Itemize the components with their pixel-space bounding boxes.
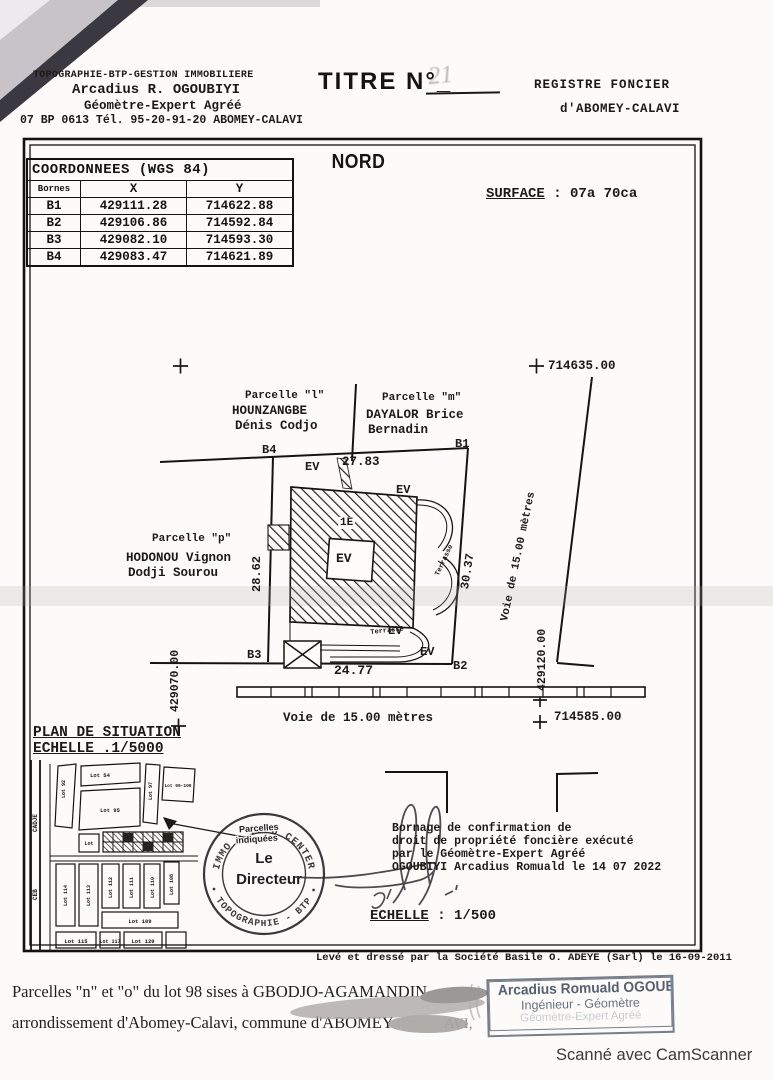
stamp-note-line1: Parcelles [239,822,279,835]
bornage-line4: OGOUBIYI Arcadius Romuald le 14 07 2022 [392,861,661,874]
lot-label: Lot 117 [99,939,120,945]
credit-line: Levé et dressé par la Société Basile O. … [316,952,732,964]
parcel-m-name: Parcelle "m" [382,392,461,404]
unit-label-1e: 1E [338,517,355,529]
firm-name: Arcadius R. OGOUBIYI [72,82,240,98]
surface-label: SURFACE [486,186,545,202]
lot-label: Lot 113 [86,885,92,906]
table-row: B4 429083.47 714621.89 [27,249,293,267]
north-label: NORD [332,151,386,174]
parcel-l-name: Parcelle "l" [245,390,324,402]
lot-label: Lot 112 [108,877,114,898]
terrace-label-right: Terrasse [434,544,455,578]
coordinates-table: COORDONNEES (WGS 84) Bornes X Y B1 42911… [26,158,294,267]
measure-bottom: 24.77 [334,663,373,678]
situation-map: Lot 92 Lot 54 Lot 95 Lot 97 Lot 99-100 L… [28,760,198,952]
surface-line: SURFACE : 07a 70ca [486,186,637,202]
scanned-survey-document: TOPOGRAPHIE-BTP-GESTION IMMOBILIERE Arca… [0,0,773,1080]
borne-b3: B3 [247,648,261,662]
measure-right: 30.37 [458,552,477,590]
coord-cell: B2 [27,215,81,232]
bornage-line3: par le Géomètre-Expert Agréé [392,848,585,861]
measure-left: 28.62 [250,556,264,592]
main-scale-label: ECHELLE [370,908,429,924]
camscanner-credit: Scanné avec CamScanner [556,1046,752,1065]
firm-address: 07 BP 0613 Tél. 95-20-91-20 ABOMEY-CALAV… [20,114,303,127]
lot-label: Lot 108 [169,874,175,895]
building-footprint [290,487,417,628]
table-row: B1 429111.28 714622.88 [27,198,293,215]
coords-header-x: X [81,181,187,198]
coords-title: COORDONNEES (WGS 84) [27,159,293,181]
borne-b2: B2 [453,659,467,673]
parcel-m-owner1: DAYALOR Brice [366,408,464,422]
coord-cell: B3 [27,232,81,249]
bornage-line1: Bornage de confirmation de [392,822,571,835]
lot-label: Lot 97 [148,782,154,800]
lot-label: Lot 92 [61,780,67,798]
title-underline [426,91,500,94]
main-scale-value: : 1/500 [429,908,496,924]
parcel-p-name: Parcelle "p" [152,533,231,545]
stamp-note-line2: indiquées [235,833,278,846]
main-scale-line: ECHELLE : 1/500 [370,908,496,924]
lot-label: Lot 115 [64,938,88,945]
ev-label-right: EV [396,483,410,497]
lot-label: Lot 111 [129,877,135,898]
coord-cell: 429111.28 [81,198,187,215]
parcel-l-owner1: HOUNZANGBE [232,404,307,418]
grid-mark-bottom: 714585.00 [554,710,622,724]
svg-text:• TOPOGRAPHIE - BTP •: • TOPOGRAPHIE - BTP • [207,885,320,929]
leader-line [163,817,249,838]
stamp-center-line2: Directeur [236,871,302,888]
pen-mark [372,889,391,908]
grid-mark-left-x: 429070.00 [169,650,182,712]
coords-header-y: Y [187,181,294,198]
firm-line1: TOPOGRAPHIE-BTP-GESTION IMMOBILIERE [33,70,254,81]
measure-top: 27.83 [342,455,380,469]
road-bottom-label: Voie de 15.00 mètres [283,711,433,725]
terrace-curves [290,500,459,662]
parcel-p-owner2: Dodji Sourou [128,566,218,580]
coord-cell: 714593.30 [187,232,294,249]
firm-title: Géomètre-Expert Agréé [84,99,242,113]
borne-b4: B4 [262,443,276,457]
svg-text:IMMO • TOPO CENTER: IMMO • TOPO CENTER [212,826,316,871]
coord-cell: 429106.86 [81,215,187,232]
annex-structure [268,525,289,550]
table-row: B2 429106.86 714592.84 [27,215,293,232]
redaction-blob-2 [388,1015,468,1033]
coord-cell: B4 [27,249,81,267]
lot-label: Lot [84,841,93,847]
road-left-label: CADJE [32,814,39,832]
lot-label: Lot 114 [63,885,69,906]
coord-cell: 714592.84 [187,215,294,232]
registre-line1: REGISTRE FONCIER [534,78,670,92]
lot-label: Lot 54 [90,772,111,779]
ceb-label: CEB [32,889,39,900]
scan-band-artifact [0,586,773,606]
round-stamp: IMMO • TOPO CENTER • TOPOGRAPHIE - BTP •… [195,795,465,955]
situation-title: PLAN DE SITUATION [33,725,181,741]
lot-label: Lot 109 [128,918,151,925]
lot-label: Lot 99-100 [164,783,191,789]
stamp-arc-bottom: • TOPOGRAPHIE - BTP • [207,885,320,929]
coord-cell: 429083.47 [81,249,187,267]
coords-header-bornes: Bornes [27,181,81,198]
parcel-m-owner2: Bernadin [368,423,428,437]
crossed-box [284,641,321,668]
surface-value: : 07a 70ca [545,186,637,202]
registre-line2: d'ABOMEY-CALAVI [560,102,680,116]
grid-mark-top: 714635.00 [548,359,616,373]
lot-label: Lot 110 [150,877,156,898]
title-number-handwritten: 21 [427,61,455,91]
coord-cell: B1 [27,198,81,215]
coord-cell: 714621.89 [187,249,294,267]
ev-label-center: EV [336,551,352,566]
table-row: B3 429082.10 714593.30 [27,232,293,249]
borne-b1: B1 [455,437,469,451]
ev-label-top: EV [305,460,319,474]
coord-cell: 714622.88 [187,198,294,215]
subject-parcels-hatched [103,832,183,852]
situation-scale: ECHELLE .1/5000 [33,741,164,757]
bornage-line2: droit de propriété foncière exécuté [392,835,634,848]
stamp-arc-top: IMMO • TOPO CENTER [212,826,316,871]
lot-label: Lot 120 [131,938,154,945]
scale-bar [237,687,645,697]
coord-cell: 429082.10 [81,232,187,249]
parcel-p-owner1: HODONOU Vignon [126,551,231,565]
lot-label: Lot 95 [100,807,121,814]
surveyor-rect-stamp: Arcadius Romuald OGOUBIYI Ingénieur - Gé… [486,975,674,1038]
ev-label-bottom-right: EV [420,645,434,659]
stamp-center-line1: Le [255,850,273,867]
parcel-l-owner2: Dénis Codjo [235,419,318,433]
grid-mark-right-x: 429120.00 [536,629,549,691]
